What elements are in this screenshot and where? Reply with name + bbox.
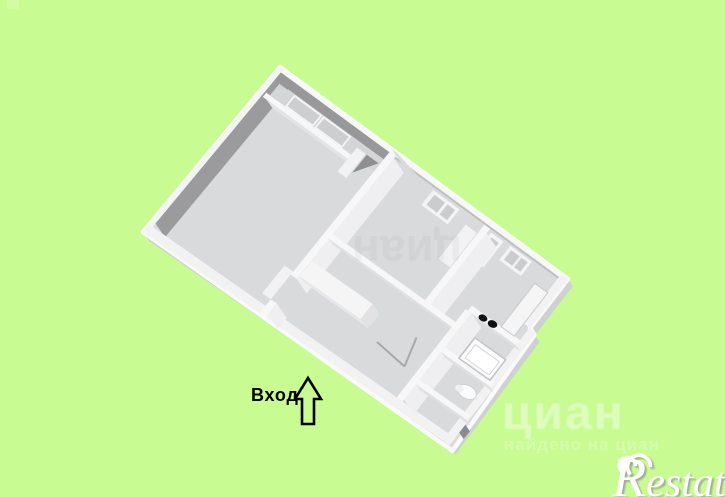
svg-text:циан: циан [502, 387, 625, 440]
svg-text:Вход: Вход [251, 385, 299, 405]
svg-text:циан: циан [352, 226, 462, 278]
